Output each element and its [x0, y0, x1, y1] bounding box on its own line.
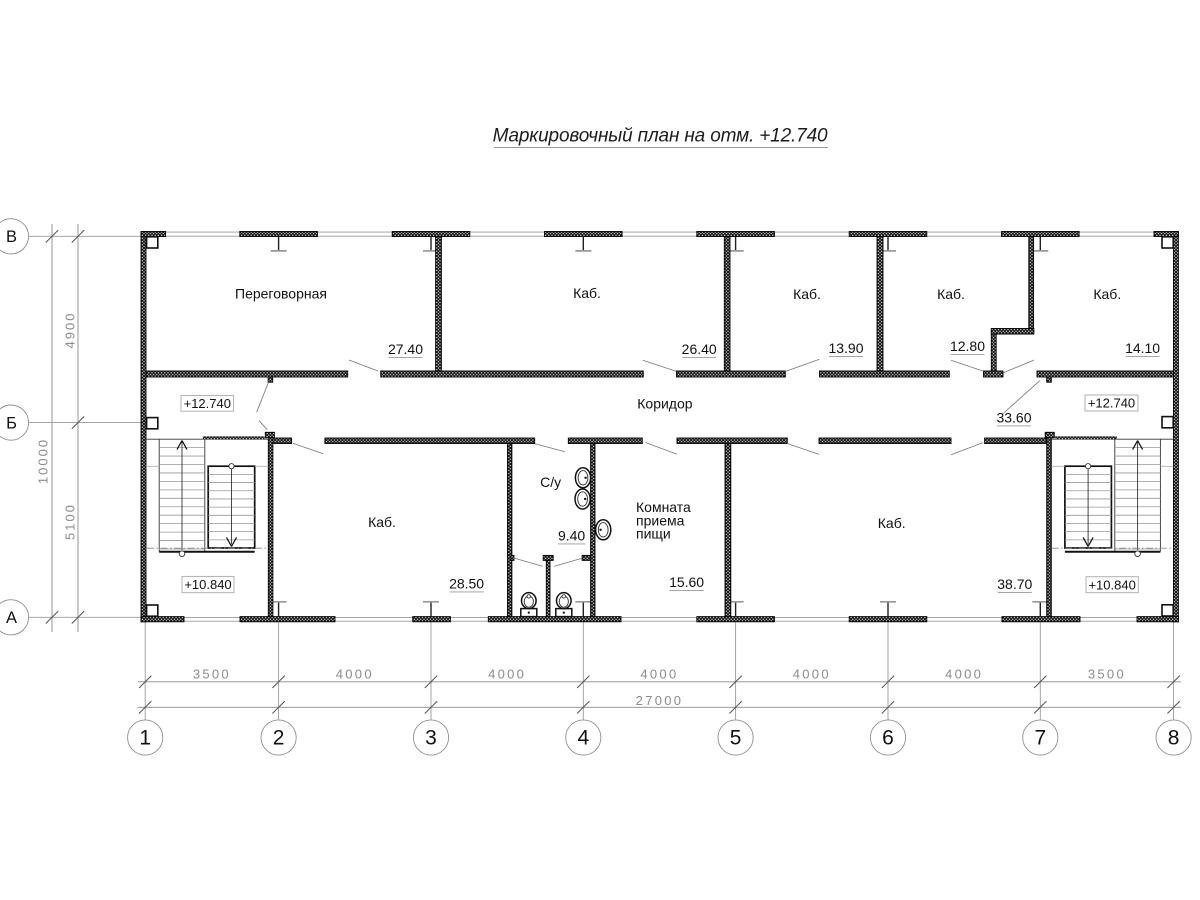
- svg-text:Б: Б: [6, 414, 17, 432]
- svg-text:10000: 10000: [36, 438, 51, 484]
- svg-text:15.60: 15.60: [669, 574, 704, 590]
- svg-text:5100: 5100: [63, 503, 78, 540]
- svg-text:12.80: 12.80: [950, 338, 985, 354]
- svg-text:28.50: 28.50: [449, 576, 484, 592]
- svg-text:33.60: 33.60: [996, 410, 1031, 426]
- svg-text:Каб.: Каб.: [878, 515, 906, 531]
- svg-text:1: 1: [139, 727, 151, 750]
- svg-text:4000: 4000: [945, 667, 983, 682]
- svg-text:Переговорная: Переговорная: [235, 285, 327, 301]
- svg-text:Каб.: Каб.: [368, 514, 396, 530]
- svg-text:4000: 4000: [336, 667, 374, 682]
- svg-text:27.40: 27.40: [388, 341, 423, 357]
- svg-text:4000: 4000: [793, 667, 831, 682]
- svg-text:А: А: [6, 609, 17, 627]
- svg-text:9.40: 9.40: [558, 528, 585, 544]
- svg-text:27000: 27000: [636, 693, 684, 708]
- svg-text:+12.740: +12.740: [1088, 396, 1135, 411]
- svg-text:38.70: 38.70: [997, 576, 1032, 592]
- svg-text:Каб.: Каб.: [573, 285, 601, 301]
- svg-text:6: 6: [882, 727, 894, 750]
- svg-text:Каб.: Каб.: [937, 286, 965, 302]
- svg-text:3: 3: [425, 727, 437, 750]
- svg-text:Маркировочный план на отм. +12: Маркировочный план на отм. +12.740: [493, 126, 828, 147]
- svg-text:3500: 3500: [1088, 667, 1126, 682]
- svg-text:4: 4: [577, 727, 589, 750]
- svg-text:+10.840: +10.840: [184, 577, 231, 592]
- svg-text:2: 2: [273, 727, 285, 750]
- svg-text:4000: 4000: [640, 667, 678, 682]
- svg-text:5: 5: [730, 727, 742, 750]
- svg-text:14.10: 14.10: [1125, 340, 1160, 356]
- svg-text:В: В: [6, 228, 17, 246]
- svg-text:пищи: пищи: [636, 526, 671, 542]
- svg-text:26.40: 26.40: [682, 341, 717, 357]
- svg-text:+10.840: +10.840: [1088, 577, 1135, 592]
- svg-text:Коридор: Коридор: [637, 396, 693, 412]
- svg-text:4000: 4000: [488, 667, 526, 682]
- svg-text:+12.740: +12.740: [184, 396, 231, 411]
- svg-text:8: 8: [1168, 727, 1180, 750]
- svg-text:13.90: 13.90: [828, 340, 863, 356]
- svg-text:4900: 4900: [63, 312, 78, 349]
- svg-text:7: 7: [1034, 727, 1046, 750]
- svg-text:Каб.: Каб.: [793, 286, 821, 302]
- svg-text:С/у: С/у: [540, 474, 561, 490]
- svg-text:3500: 3500: [193, 667, 231, 682]
- svg-text:Каб.: Каб.: [1093, 286, 1121, 302]
